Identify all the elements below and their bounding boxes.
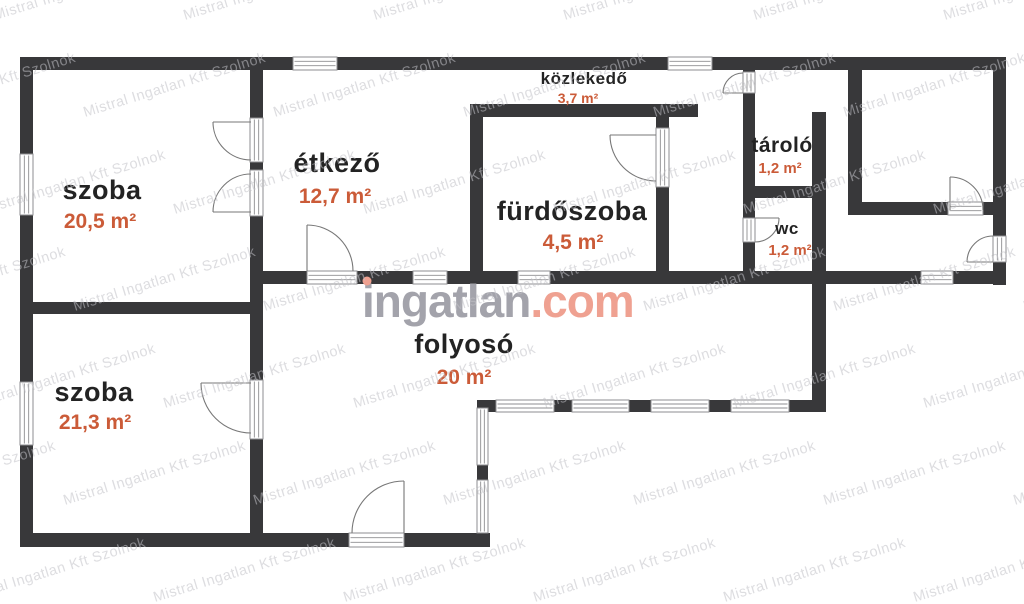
- window: [293, 57, 337, 70]
- area-label-furdoszoba: 4,5 m²: [543, 231, 604, 254]
- window-frame: [668, 57, 712, 70]
- area-label-tarolo: 1,2 m²: [758, 160, 801, 177]
- watermark-text: Mistral Ingatlan Kft Szolnok: [721, 535, 907, 604]
- watermark-text: Mistral Ingatlan Kft Szolnok: [0, 50, 78, 121]
- area-label-kozlekedo: 3,7 m²: [558, 90, 599, 106]
- wall-segment: [848, 70, 862, 215]
- watermark-text: Mistral Ingatlan Kft Szolnok: [751, 0, 937, 24]
- door-leaf-frame: [743, 218, 755, 242]
- window-frame: [477, 408, 488, 465]
- door-arc: [352, 481, 404, 533]
- watermark-text: Mistral Ingatlan Kft Szolnok: [61, 438, 247, 509]
- area-label-szoba-top: 20,5 m²: [64, 210, 136, 233]
- room-label-wc: wc: [774, 219, 799, 238]
- watermark-text: Mistral Ingatlan Kft Szolnok: [441, 438, 627, 509]
- watermark-text: Mistral Ingatlan Kft Szolnok: [0, 0, 178, 24]
- wall-segment: [20, 302, 263, 314]
- floorplan-canvas: szoba 20,5 m² étkező 12,7 m² közlekedő 3…: [0, 0, 1024, 604]
- wall-segment: [743, 70, 755, 284]
- door-leaf-frame: [349, 533, 404, 547]
- window: [651, 400, 709, 412]
- door-leaf: [349, 533, 404, 547]
- door-leaf: [250, 380, 263, 439]
- door-leaf-frame: [250, 118, 263, 162]
- door-leaf: [250, 118, 263, 162]
- door-arc: [213, 122, 251, 160]
- area-label-szoba-bottom: 21,3 m²: [59, 411, 131, 434]
- door-swing: [213, 122, 251, 160]
- watermark-text: Mistral Ingatlan Kft Szolnok: [821, 438, 1007, 509]
- watermark-text: Mistral Ingatlan Kft Szolnok: [911, 535, 1024, 604]
- watermark-text: Mistral Ingatlan Kft Szolnok: [371, 0, 557, 24]
- watermark-text: Mistral Ingatlan Kft Szolnok: [921, 341, 1024, 412]
- watermark-text: Mistral Ingatlan Kft Szolnok: [631, 438, 817, 509]
- window: [572, 400, 629, 412]
- door-arc: [307, 225, 353, 271]
- watermark-text: Mistral Ingatlan Kft Szolnok: [941, 0, 1024, 24]
- room-label-tarolo: tároló: [751, 134, 812, 157]
- door-swing: [352, 481, 404, 533]
- watermark-text: Mistral Ingatlan Kft Szolnok: [561, 0, 747, 24]
- window: [477, 408, 488, 465]
- window-frame: [651, 400, 709, 412]
- watermark-text: Mistral Ingatlan Kft Szolnok: [181, 0, 367, 24]
- watermark-text: Mistral Ingatlan Kft Szolnok: [251, 438, 437, 509]
- door-leaf-frame: [250, 380, 263, 439]
- door-leaf: [743, 218, 755, 242]
- window: [668, 57, 712, 70]
- area-label-etkezo: 12,7 m²: [299, 185, 371, 208]
- wall-segment: [20, 533, 490, 547]
- watermark-text: Mistral Ingatlan Kft Szolnok: [531, 535, 717, 604]
- watermark-text: Mistral Ingatlan Kft Szolnok: [1011, 438, 1024, 509]
- wall-segment: [470, 104, 483, 284]
- window-frame: [572, 400, 629, 412]
- floorplan-svg: szoba 20,5 m² étkező 12,7 m² közlekedő 3…: [0, 0, 1024, 604]
- wall-segment: [20, 57, 1006, 70]
- window-frame: [293, 57, 337, 70]
- door-swing: [307, 225, 353, 271]
